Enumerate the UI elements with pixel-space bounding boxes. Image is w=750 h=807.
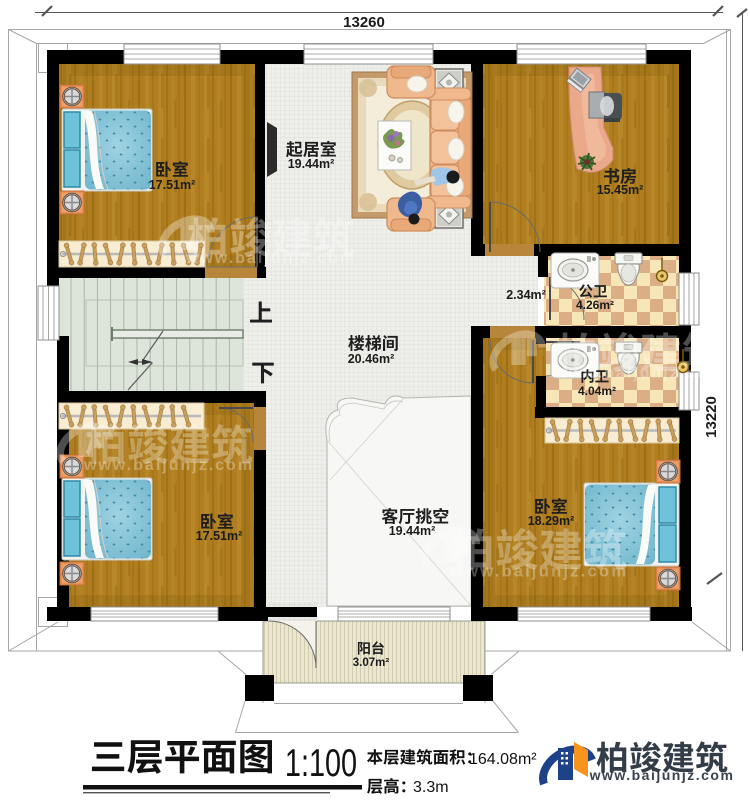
svg-text:164.08m²: 164.08m² — [469, 751, 537, 768]
svg-text:www.baijunjz.com: www.baijunjz.com — [589, 767, 735, 783]
svg-text:19.44m²: 19.44m² — [288, 157, 335, 171]
svg-text:17.51m²: 17.51m² — [196, 529, 243, 543]
svg-text:13260: 13260 — [343, 14, 385, 31]
svg-text:13220: 13220 — [703, 396, 720, 438]
svg-text:15.45m²: 15.45m² — [597, 183, 644, 197]
svg-text:18.29m²: 18.29m² — [528, 514, 575, 528]
svg-text:www.baijunjz.com: www.baijunjz.com — [554, 365, 725, 382]
svg-text:3.3m: 3.3m — [413, 779, 449, 796]
svg-text:17.51m²: 17.51m² — [149, 178, 196, 192]
svg-text:20.46m²: 20.46m² — [348, 352, 395, 366]
svg-text:4.04m²: 4.04m² — [578, 384, 616, 398]
svg-text:www.baijunjz.com: www.baijunjz.com — [449, 561, 628, 580]
svg-text:19.44m²: 19.44m² — [389, 524, 436, 538]
svg-text:www.baijunjz.com: www.baijunjz.com — [185, 250, 356, 267]
svg-text:1:100: 1:100 — [285, 742, 357, 785]
svg-text:www.baijunjz.com: www.baijunjz.com — [83, 457, 254, 474]
svg-text:4.26m²: 4.26m² — [576, 298, 614, 312]
svg-text:2.34m²: 2.34m² — [506, 288, 546, 302]
svg-text:3.07m²: 3.07m² — [353, 657, 390, 669]
